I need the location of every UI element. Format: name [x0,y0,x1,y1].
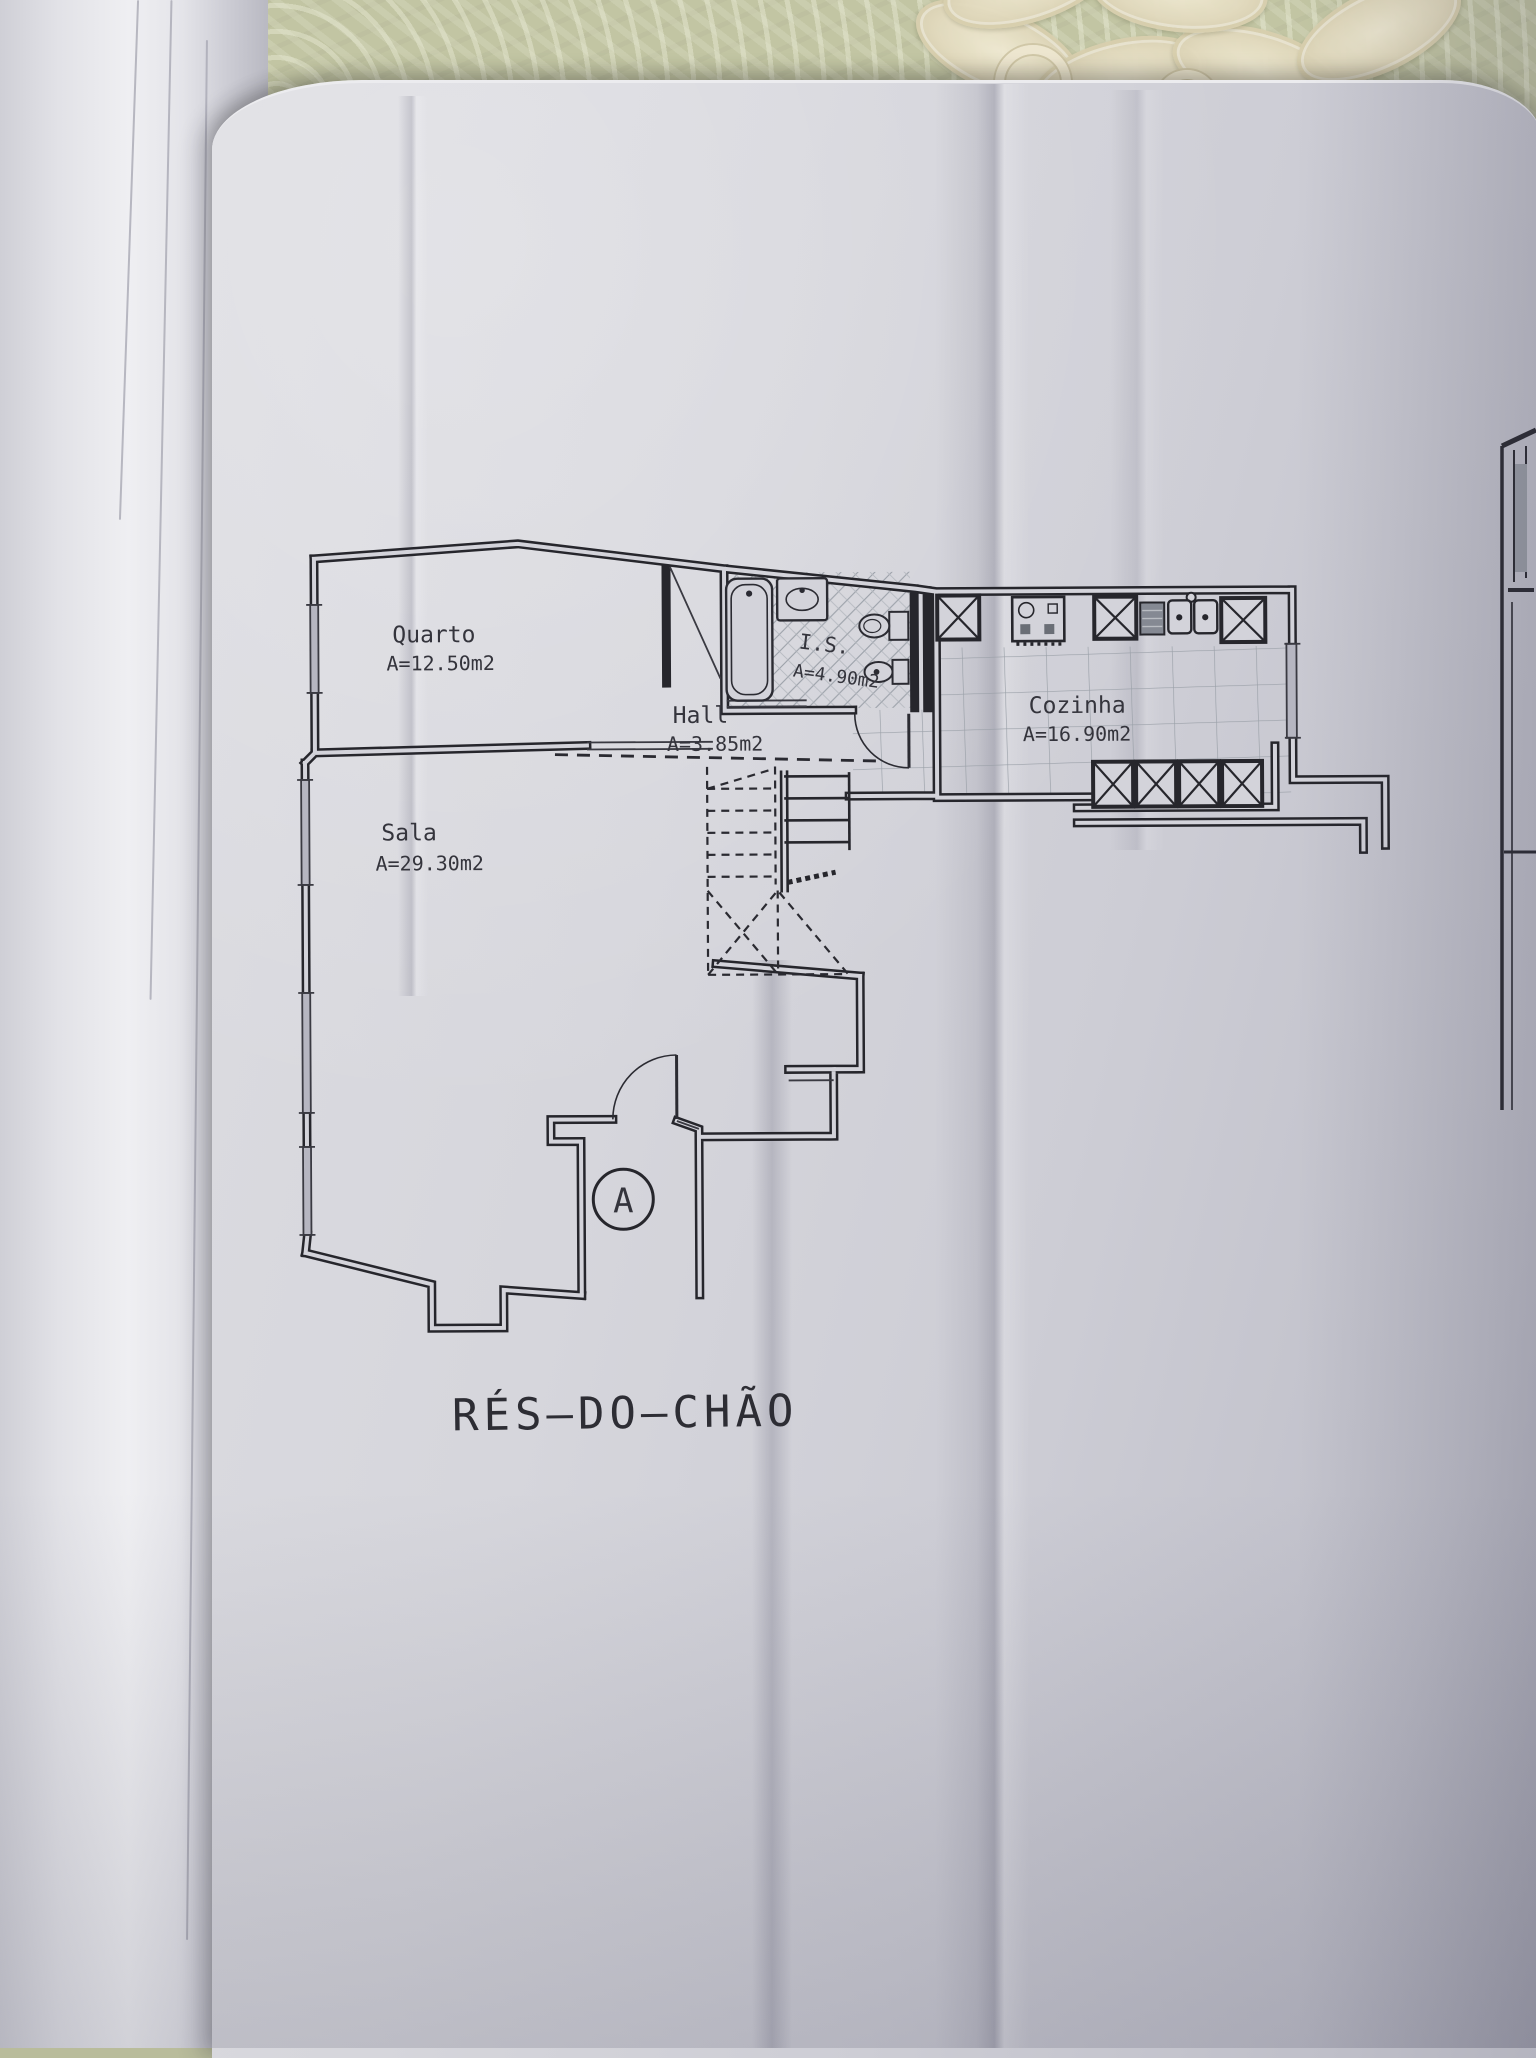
floor-plan-svg: A Quarto A=12.50m2 Sala A=29.30m2 Hall A… [286,529,1450,1375]
bidet [892,660,908,684]
bathtub [726,578,773,700]
room-area-hall: A=3.85m2 [667,732,763,757]
kitchen-entry-tiles [853,710,937,798]
washbasin [777,578,827,620]
staircase [707,766,850,975]
entrance-door [613,1055,677,1119]
room-label-hall: Hall [673,703,729,729]
room-area-cozinha: A=16.90m2 [1023,722,1131,747]
room-label-sala: Sala [381,820,437,846]
floor-plan-drawing: A Quarto A=12.50m2 Sala A=29.30m2 Hall A… [286,529,1450,1375]
photo-of-floorplan-page: { "plan": { "title": "RÉS—DO—CHÃO", "roo… [0,0,1536,2048]
room-label-quarto: Quarto [392,622,475,648]
room-area-quarto: A=12.50m2 [386,651,494,676]
section-marker: A [593,1169,653,1229]
stair-section-mark [788,872,836,882]
photo-shadow-bottom [0,1488,1536,2048]
room-label-cozinha: Cozinha [1029,693,1126,720]
plan-title: RÉS—DO—CHÃO [452,1386,799,1442]
toilet [889,612,908,640]
section-marker-letter: A [613,1181,634,1221]
room-area-sala: A=29.30m2 [375,851,483,876]
